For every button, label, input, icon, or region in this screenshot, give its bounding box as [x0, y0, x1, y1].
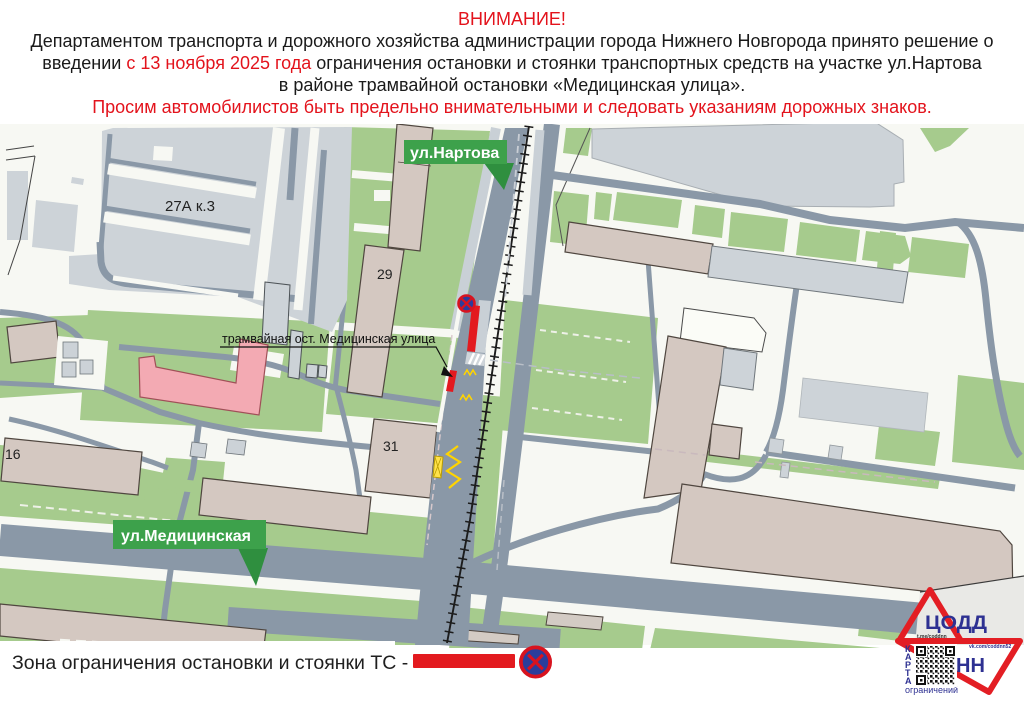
svg-text:НН: НН	[956, 655, 985, 677]
svg-text:ул.Медицинская: ул.Медицинская	[121, 528, 251, 545]
svg-text:31: 31	[383, 438, 399, 454]
svg-text:29: 29	[377, 266, 393, 282]
svg-text:vk.com/coddnn52: vk.com/coddnn52	[969, 644, 1011, 650]
svg-text:ул.Нартова: ул.Нартова	[410, 145, 499, 162]
svg-text:трамвайная ост. Медицинская ул: трамвайная ост. Медицинская улица	[222, 332, 435, 346]
svg-text:ЦОДД: ЦОДД	[925, 613, 988, 634]
svg-text:Зона ограничения остановки и с: Зона ограничения остановки и стоянки ТС …	[12, 652, 408, 674]
svg-text:27А к.3: 27А к.3	[165, 198, 215, 215]
svg-text:16: 16	[5, 446, 21, 462]
svg-text:t.me/coddnn: t.me/coddnn	[917, 634, 947, 640]
